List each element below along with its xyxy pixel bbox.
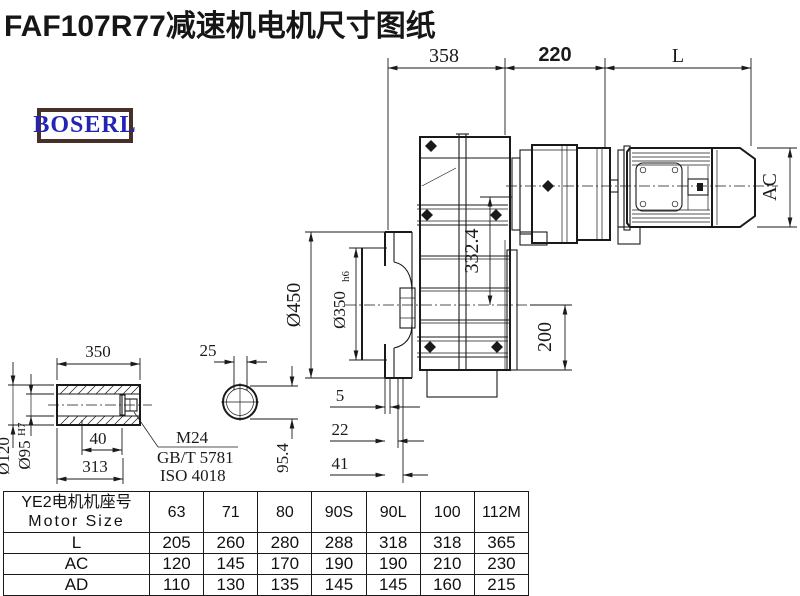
dim-shaft-bore: Ø95	[15, 440, 34, 469]
dim-shaft-od: Ø120	[0, 437, 13, 475]
table-col-71: 71	[204, 492, 258, 533]
dim-shaft-bore-tol: H7	[16, 422, 28, 436]
dim-332-group: 332.4	[461, 197, 512, 305]
input-stage	[512, 145, 618, 245]
table-header-label: YE2电机机座号 Motor Size	[4, 492, 150, 533]
dim-flange-spigot-tol: h6	[340, 271, 352, 283]
note-gbt: GB/T 5781	[157, 448, 234, 467]
dim-332: 332.4	[461, 229, 483, 274]
dim-954: 95.4	[273, 443, 292, 473]
dim-AC: AC	[759, 173, 781, 201]
dim-shaft-40: 40	[90, 429, 107, 448]
table-col-80: 80	[258, 492, 312, 533]
row-label-AD: AD	[4, 575, 150, 596]
dim-41: 41	[332, 454, 349, 473]
drawing-page: FAF107R77减速机电机尺寸图纸 BOSERL 358 220 L	[0, 0, 800, 596]
dim-200-group: 200	[512, 305, 572, 370]
motor	[618, 146, 755, 244]
table-col-112M: 112M	[474, 492, 528, 533]
dim-shaft-350: 350	[85, 342, 111, 361]
note-m24: M24	[176, 428, 209, 447]
dim-22: 22	[332, 420, 349, 439]
row-label-L: L	[4, 533, 150, 554]
motor-size-table: YE2电机机座号 Motor Size 63 71 80 90S 90L 100…	[3, 491, 529, 596]
row-label-AC: AC	[4, 554, 150, 575]
center-lines	[48, 186, 778, 405]
table-row: L 205 260 280 288 318 318 365	[4, 533, 529, 554]
dim-flange-spigot: Ø350	[330, 291, 349, 329]
dim-ac-group: AC	[757, 148, 797, 227]
table-col-90S: 90S	[312, 492, 366, 533]
dim-200: 200	[534, 322, 556, 352]
dim-flange-od: Ø450	[283, 283, 305, 327]
table-row: AD 110 130 135 145 145 160 215	[4, 575, 529, 596]
dim-shaft-group: 350 Ø120 Ø95 H7 40 313 M24	[0, 342, 238, 485]
fan-cover	[712, 148, 755, 227]
dim-shaft-313: 313	[82, 457, 108, 476]
note-iso: ISO 4018	[160, 466, 226, 485]
dim-shaft-25: 25	[200, 341, 217, 360]
table-col-90L: 90L	[366, 492, 420, 533]
table-header-row: YE2电机机座号 Motor Size 63 71 80 90S 90L 100…	[4, 492, 529, 533]
dim-5: 5	[336, 386, 345, 405]
table-row: AC 120 145 170 190 190 210 230	[4, 554, 529, 575]
dim-offsets-group: 5 22 41	[330, 378, 428, 483]
table-col-100: 100	[420, 492, 474, 533]
dim-358: 358	[429, 45, 459, 67]
dim-220: 220	[538, 44, 571, 66]
dim-L: L	[672, 45, 684, 67]
table-col-63: 63	[150, 492, 204, 533]
bolt-icon	[542, 180, 554, 192]
